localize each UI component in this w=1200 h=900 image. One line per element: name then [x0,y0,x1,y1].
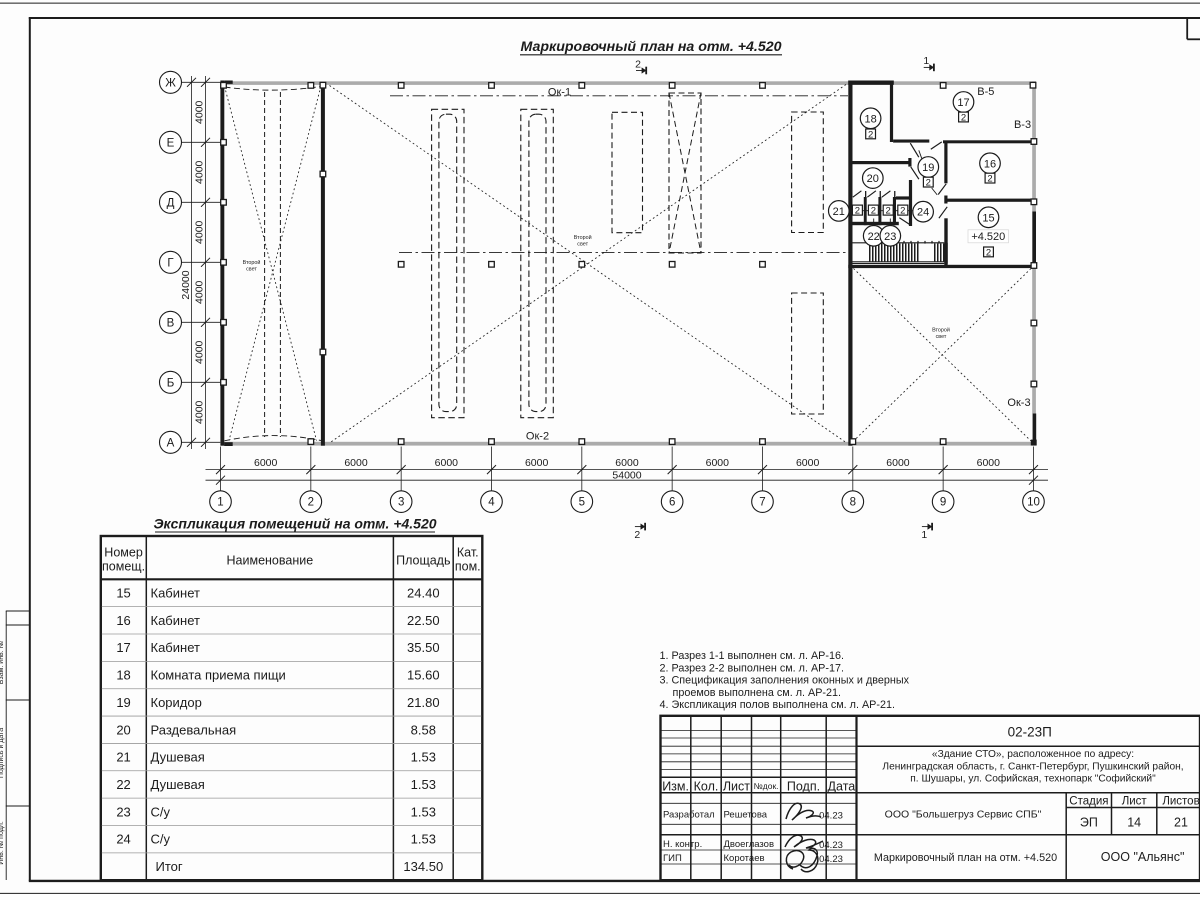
svg-text:1.53: 1.53 [411,832,436,847]
svg-text:ГИП: ГИП [663,853,682,864]
svg-text:В: В [167,317,175,329]
svg-text:Листов: Листов [1162,795,1199,807]
svg-text:20: 20 [116,722,130,737]
svg-text:А: А [167,437,175,449]
svg-text:Раздевальная: Раздевальная [151,722,237,737]
svg-text:свет: свет [577,242,588,248]
svg-text:1.53: 1.53 [411,750,436,765]
svg-text:4000: 4000 [193,400,205,424]
svg-text:№док.: №док. [754,781,779,791]
svg-text:6000: 6000 [796,457,820,469]
svg-text:1: 1 [921,529,927,541]
svg-text:Ок-3: Ок-3 [1007,397,1030,409]
svg-text:1: 1 [923,55,929,67]
svg-text:18: 18 [116,668,130,683]
svg-text:2. Разрез 2-2 выполнен см. л.: 2. Разрез 2-2 выполнен см. л. АР-17. [660,662,844,674]
svg-text:Комната приема пищи: Комната приема пищи [151,668,286,683]
svg-text:Маркировочный план на отм. +4.: Маркировочный план на отм. +4.520 [874,852,1057,864]
svg-text:16: 16 [116,613,130,628]
svg-text:19: 19 [922,162,934,174]
svg-text:Б: Б [167,377,175,389]
svg-text:Наименование: Наименование [227,554,314,568]
svg-text:15: 15 [116,586,130,601]
svg-text:22: 22 [868,231,880,243]
svg-text:04.23: 04.23 [819,854,843,865]
svg-text:2: 2 [900,206,905,217]
svg-text:В-3: В-3 [1014,119,1031,131]
svg-text:4. Экспликация полов выполнена: 4. Экспликация полов выполнена см. л. АР… [660,699,895,711]
svg-text:Итог: Итог [156,859,183,874]
svg-text:Площадь: Площадь [396,554,450,568]
svg-text:9: 9 [940,497,946,509]
svg-text:Ленинградская область, г. Санк: Ленинградская область, г. Санкт-Петербур… [882,760,1183,772]
svg-text:2: 2 [961,113,966,124]
svg-text:7: 7 [759,497,765,509]
svg-text:Душевая: Душевая [151,750,205,765]
svg-text:4000: 4000 [193,100,205,124]
svg-text:Ок-2: Ок-2 [526,431,549,443]
svg-text:17: 17 [116,640,130,655]
svg-text:Н. контр.: Н. контр. [663,839,702,850]
svg-text:6000: 6000 [254,457,278,469]
svg-text:6: 6 [669,497,675,509]
svg-text:2: 2 [634,529,640,541]
svg-text:24: 24 [116,832,130,847]
svg-text:Ок-1: Ок-1 [548,86,571,98]
svg-text:Взам. инв. №: Взам. инв. № [0,641,5,684]
svg-text:Кабинет: Кабинет [151,613,200,628]
svg-text:21.80: 21.80 [407,695,440,710]
svg-text:3: 3 [398,497,404,509]
svg-text:2: 2 [986,247,991,258]
svg-text:Душевая: Душевая [151,777,205,792]
svg-text:6000: 6000 [615,457,639,469]
svg-text:Коридор: Коридор [151,695,202,710]
svg-text:19: 19 [116,695,130,710]
svg-text:15: 15 [982,212,994,224]
svg-text:«Здание СТО», расположенное по: «Здание СТО», расположенное по адресу: [932,749,1134,760]
svg-text:Маркировочный план на отм. +4.: Маркировочный план на отм. +4.520 [520,39,781,55]
svg-text:22.50: 22.50 [407,613,440,628]
svg-text:1.53: 1.53 [411,777,436,792]
svg-text:Дата: Дата [828,779,856,793]
svg-text:Стадия: Стадия [1069,795,1108,807]
svg-text:24000: 24000 [180,270,192,299]
svg-text:Д: Д [167,197,175,209]
svg-text:14: 14 [1127,815,1141,829]
svg-text:Решетова: Решетова [724,810,768,821]
svg-text:8: 8 [850,497,856,509]
svg-text:2: 2 [868,129,873,140]
svg-text:22: 22 [116,777,130,792]
svg-text:Подп.: Подп. [787,779,820,793]
svg-text:4000: 4000 [193,280,205,304]
svg-text:Кол.: Кол. [694,779,719,793]
svg-text:Экспликация помещений на отм.: Экспликация помещений на отм. +4.520 [153,515,436,531]
svg-text:Е: Е [167,137,175,149]
svg-text:1: 1 [217,497,223,509]
svg-text:В-5: В-5 [977,86,994,98]
svg-text:24.40: 24.40 [407,586,440,601]
svg-text:Разработал: Разработал [663,810,715,821]
svg-text:23: 23 [116,804,130,819]
svg-text:ЭП: ЭП [1080,815,1098,829]
svg-text:Подпись и дата: Подпись и дата [0,728,5,778]
svg-text:свет: свет [936,334,947,340]
svg-text:5: 5 [579,497,585,509]
svg-text:6000: 6000 [706,457,730,469]
svg-text:23: 23 [884,231,896,243]
svg-text:Второй: Второй [574,234,592,241]
svg-text:Кабинет: Кабинет [151,640,200,655]
svg-text:04.23: 04.23 [819,810,843,821]
svg-text:8.58: 8.58 [411,722,436,737]
svg-text:134.50: 134.50 [403,859,443,874]
svg-text:4: 4 [488,497,495,509]
svg-text:Второй: Второй [243,259,261,266]
svg-text:2: 2 [308,497,314,509]
svg-text:С/у: С/у [151,804,171,819]
svg-text:18: 18 [864,113,876,125]
svg-text:1. Разрез 1-1 выполнен см. л.: 1. Разрез 1-1 выполнен см. л. АР-16. [660,650,844,662]
svg-text:пом.: пом. [455,560,481,574]
svg-text:3. Спецификация заполнения око: 3. Спецификация заполнения оконных и две… [660,675,910,687]
svg-text:21: 21 [116,750,130,765]
svg-text:2: 2 [987,174,992,185]
svg-text:Ж: Ж [165,77,176,89]
svg-text:проемов выполнена см. л. АР-21: проемов выполнена см. л. АР-21. [673,687,842,699]
svg-text:Второй: Второй [932,327,950,334]
svg-text:Лист: Лист [723,779,750,793]
svg-text:6000: 6000 [525,457,549,469]
svg-text:Номер: Номер [104,546,143,560]
svg-text:Г: Г [167,257,174,269]
svg-text:2: 2 [635,58,641,70]
svg-text:Инв. № подл.: Инв. № подл. [0,821,5,865]
svg-text:20: 20 [867,173,879,185]
svg-text:Коротаев: Коротаев [724,853,765,864]
svg-text:21: 21 [833,206,845,218]
svg-text:4000: 4000 [193,220,205,244]
svg-text:6000: 6000 [344,457,368,469]
svg-text:свет: свет [246,267,257,273]
svg-text:1.53: 1.53 [411,804,436,819]
svg-text:4000: 4000 [193,340,205,364]
svg-text:4000: 4000 [193,160,205,184]
svg-text:02-23П: 02-23П [1008,725,1052,740]
svg-text:10: 10 [1027,497,1040,509]
svg-text:Кабинет: Кабинет [151,586,200,601]
svg-text:6000: 6000 [886,457,910,469]
svg-text:п. Шушары, ул. Софийская, техн: п. Шушары, ул. Софийская, технопарк "Соф… [910,773,1156,785]
svg-text:24: 24 [917,207,929,219]
svg-text:17: 17 [957,97,969,109]
svg-text:2: 2 [926,178,931,189]
svg-text:2: 2 [855,206,860,217]
svg-text:21: 21 [1174,815,1188,829]
svg-text:35.50: 35.50 [407,640,440,655]
svg-text:С/у: С/у [151,832,171,847]
svg-text:Двоеглазов: Двоеглазов [724,839,775,850]
svg-text:6000: 6000 [435,457,459,469]
svg-text:Лист: Лист [1122,795,1148,807]
svg-text:помещ.: помещ. [102,560,145,574]
svg-text:ООО "Большегруз Сервис СПБ": ООО "Большегруз Сервис СПБ" [885,809,1042,821]
svg-text:Кат.: Кат. [457,546,479,560]
svg-text:15.60: 15.60 [407,668,440,683]
svg-text:Изм.: Изм. [662,779,689,793]
svg-text:2: 2 [886,206,891,217]
svg-text:54000: 54000 [612,470,641,482]
svg-text:16: 16 [984,158,996,170]
svg-text:6000: 6000 [977,457,1001,469]
svg-text:+4.520: +4.520 [971,231,1005,243]
svg-text:ООО "Альянс": ООО "Альянс" [1101,850,1185,864]
svg-text:2: 2 [871,206,876,217]
